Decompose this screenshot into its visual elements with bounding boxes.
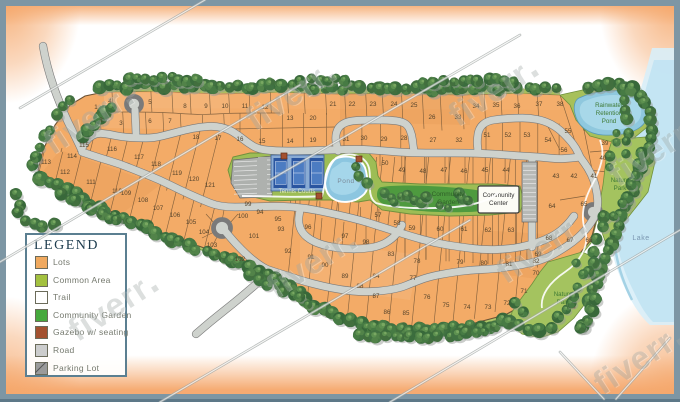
svg-text:fiverr.: fiverr. xyxy=(599,103,680,195)
svg-text:fiverr.: fiverr. xyxy=(584,311,680,402)
